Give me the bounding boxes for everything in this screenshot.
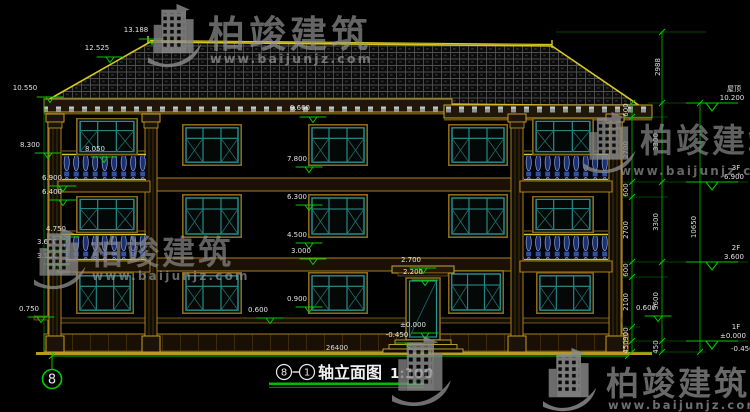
window-3f-2 [309,125,367,165]
elevation-drawing-canvas: 13.188 12.525 10.550 9.660 8.300 8.050 6… [0,0,750,412]
window-2f-3 [449,195,507,237]
dim-text: 2100 [622,293,630,311]
watermark-brand: 柏竣建筑 [640,121,750,160]
elevation-label: -0.450 [386,331,409,339]
title-axis-from: 8 [281,368,287,379]
grid-bubble-number: 8 [48,373,56,388]
floor-marker-value: -0.450 [731,345,750,353]
elevation-label: 2.200 [403,268,423,276]
floor-marker-value: 10.200 [720,94,745,102]
watermark-url: www.baijunjz.com [92,269,250,283]
dim-text: 450 [652,340,660,353]
floor-marker-value: 3.600 [724,253,744,261]
dim-text: 600 [622,103,630,116]
floor-marker-label: 1F [732,323,740,331]
elevation-label: 6.300 [287,193,307,201]
title-text: 轴立面图 [318,363,382,382]
elevation-label: 3.000 [291,247,311,255]
dim-text: 2700 [622,221,630,239]
elevation-label: 9.660 [290,104,310,112]
elevation-label: 8.050 [85,145,105,153]
watermark-brand: 柏竣建筑 [90,233,234,272]
window-2f-right-wing [533,197,593,233]
dim-text: 2988 [654,58,662,76]
dim-text: 600 [622,183,630,196]
elevation-label: 2.700 [401,256,421,264]
floor-marker-label: 屋顶 [727,85,741,93]
window-3f-3 [449,125,507,165]
dim-text: 900 [622,327,630,340]
elevation-label: 0.900 [287,295,307,303]
dim-text: 450 [622,340,630,353]
watermark-url: www.baijunjz.com [608,398,750,412]
elevation-label: 6.900 [42,174,62,182]
elevation-label: 13.188 [124,26,149,34]
elevation-label: 12.525 [85,44,110,52]
window-2f-1 [183,195,241,237]
dim-text: 3600 [652,292,660,310]
elevation-label: 8.300 [20,141,40,149]
elevation-label: 6.400 [42,188,62,196]
window-3f-1 [183,125,241,165]
floor-marker-value: ±0.000 [720,332,746,340]
dim-text: 3300 [652,213,660,231]
elevation-label: 0.750 [19,305,39,313]
window-2f-2 [309,195,367,237]
window-3f-right-wing [533,119,593,155]
dim-text: 600 [622,263,630,276]
dim-text: 10650 [690,216,698,238]
window-1f-3 [449,271,504,313]
floor-marker-label: 2F [732,244,740,252]
elevation-label: 0.600 [248,306,268,314]
elevation-label: 4.500 [287,231,307,239]
pilaster-left-corner [46,114,64,352]
title-axis-to: 1 [304,368,310,379]
elevation-label: 10.550 [13,84,38,92]
overall-width-dim: 26400 [326,344,348,352]
window-2f-left-wing [77,197,137,233]
elevation-label: 7.800 [287,155,307,163]
window-1f-right-wing [537,273,593,313]
watermark-url: www.baijunjz.com [620,164,750,178]
balcony-right-2f [520,231,612,272]
watermark-brand: 柏竣建筑 [208,13,372,56]
watermark-url: www.baijunjz.com [210,51,373,66]
pilaster-right-inner [508,114,526,352]
elevation-label: ±0.000 [400,321,426,329]
